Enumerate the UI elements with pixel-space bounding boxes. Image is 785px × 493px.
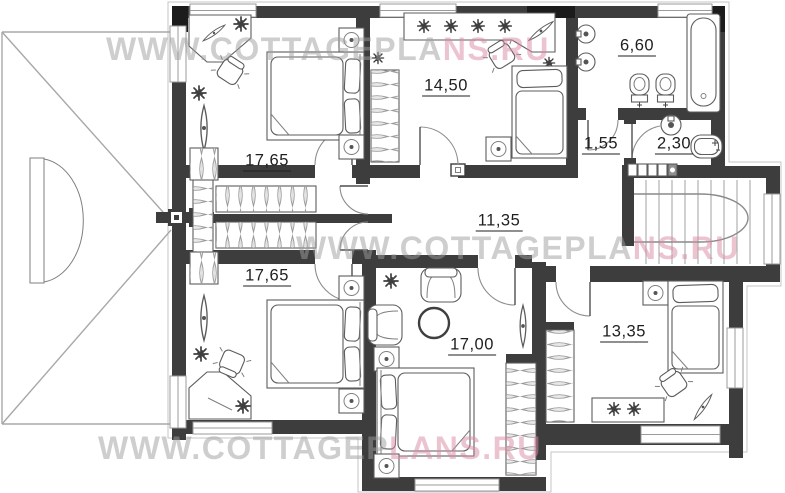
room-area-label: 17,65 [243, 152, 291, 171]
toilet [630, 74, 649, 108]
room-area-label: 2,30 [655, 135, 693, 154]
round-table [419, 308, 449, 338]
double-bed [267, 300, 364, 388]
tv-cabinet [486, 137, 511, 161]
armchair [421, 268, 461, 302]
room-area-label: 14,50 [422, 77, 470, 96]
double-bed [377, 368, 474, 456]
bedroom-bottom-right-furniture [546, 281, 723, 422]
single-bed [668, 281, 723, 373]
floor-plan: 17,65 14,50 6,60 1,55 2,30 11,35 17,65 1… [0, 0, 785, 493]
bidet [656, 74, 675, 108]
single-bed [512, 66, 567, 158]
room-area-label: 13,35 [600, 323, 648, 342]
room-area-label: 17,65 [243, 267, 291, 286]
room-area-label: 17,00 [448, 336, 496, 355]
room-area-label: 1,55 [582, 135, 620, 154]
armchair [368, 305, 402, 345]
mirror [520, 305, 526, 346]
bathroom-large-fixtures [576, 14, 720, 112]
desk [592, 398, 664, 422]
floor-plan-drawing [0, 0, 785, 493]
staircase [628, 164, 750, 264]
room-area-label: 6,60 [618, 37, 656, 56]
wall-vent [451, 164, 465, 176]
double-bed [267, 52, 364, 140]
room-area-label: 11,35 [476, 212, 523, 231]
bedroom-bottom-middle-furniture [368, 268, 536, 478]
roof-plan [2, 32, 171, 424]
shelf-boxes [628, 164, 677, 176]
